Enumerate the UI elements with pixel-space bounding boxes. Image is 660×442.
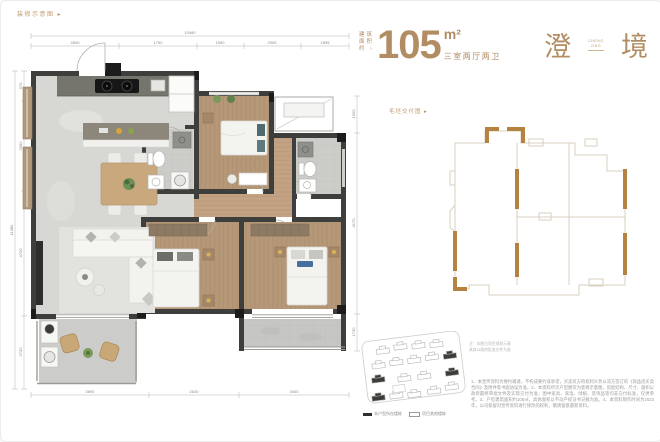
site-notes: 注：本图为项目规划示意 具体以政府批准文件为准: [469, 342, 511, 353]
svg-text:1895: 1895: [321, 40, 331, 45]
main-floor-plan: 10980 2840 1750 1590 2905 1895 11380 970…: [1, 1, 369, 441]
svg-text:11380: 11380: [9, 224, 14, 236]
floorplan-poster: 装修示意图 ▸: [0, 0, 660, 442]
area-spec: 建筑 面积 约 › 105 m² 三室两厅两卫: [359, 25, 501, 65]
delivery-plan-label: 毛坯交付图 ▸: [389, 107, 428, 115]
disclaimer-text: 1、本宣传资料为要约邀请，不构成要约或承诺，买卖双方的权利义务以双方签订的《商品…: [471, 379, 654, 409]
svg-text:2840: 2840: [71, 40, 81, 45]
svg-text:1000: 1000: [351, 109, 356, 119]
svg-text:1730: 1730: [351, 327, 356, 337]
svg-text:2630: 2630: [190, 389, 200, 394]
svg-text:10980: 10980: [184, 30, 196, 35]
legend-item-current: 本户型所在楼栋: [363, 411, 402, 417]
svg-text:3690: 3690: [86, 389, 96, 394]
title-char-last: 境: [621, 25, 648, 64]
svg-text:4170: 4170: [351, 218, 356, 228]
legend-swatch-light: [409, 412, 420, 417]
svg-text:2980: 2980: [18, 141, 23, 151]
svg-text:2905: 2905: [268, 40, 278, 45]
legend-item-other: 项目其他楼栋: [409, 411, 446, 417]
svg-text:3400: 3400: [290, 389, 300, 394]
site-plan: [357, 331, 471, 411]
svg-text:1590: 1590: [216, 40, 226, 45]
svg-text:2730: 2730: [18, 347, 23, 357]
area-unit: m²: [444, 27, 501, 41]
layout-text: 三室两厅两卫: [444, 51, 501, 62]
title-char-first: 澄: [544, 25, 571, 64]
site-plan-group: [361, 331, 466, 404]
legend-swatch-dark: [363, 413, 372, 416]
delivery-outline-plan: [429, 113, 649, 329]
area-prefix: 建筑 面积 约 ›: [359, 32, 374, 53]
site-legend: 本户型所在楼栋 项目其他楼栋: [363, 411, 446, 417]
svg-text:970: 970: [18, 82, 23, 89]
project-title: 澄 CHENG JING 境: [544, 25, 648, 64]
svg-text:4700: 4700: [18, 248, 23, 258]
delivery-outline: [450, 131, 625, 295]
title-subtext: CHENG JING: [588, 39, 604, 51]
svg-text:1750: 1750: [154, 40, 164, 45]
area-value: 105: [377, 25, 441, 65]
bathroom-2: [298, 142, 316, 192]
delivery-highlight-walls: [455, 129, 625, 289]
